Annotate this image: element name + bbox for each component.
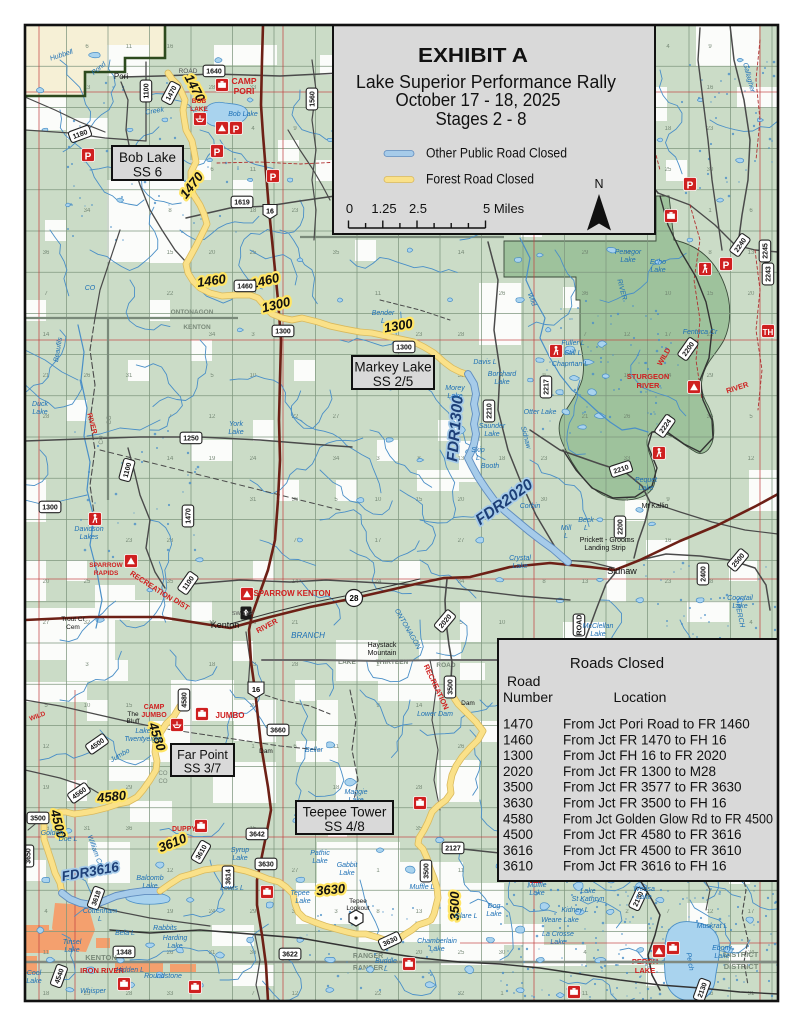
svg-text:Bluff: Bluff: [127, 718, 140, 725]
svg-text:31: 31: [84, 826, 91, 832]
svg-text:Bob Lake: Bob Lake: [119, 150, 176, 165]
svg-text:26: 26: [458, 744, 465, 750]
svg-text:Mill: Mill: [561, 525, 572, 532]
svg-text:Buddle: Buddle: [375, 958, 397, 965]
svg-text:RAPIDS: RAPIDS: [94, 570, 119, 577]
svg-text:3614: 3614: [226, 869, 233, 885]
svg-text:1460: 1460: [503, 732, 533, 747]
svg-text:From Jct Pori Road to FR 1460: From Jct Pori Road to FR 1460: [563, 717, 750, 732]
svg-text:10: 10: [499, 620, 506, 626]
svg-text:1.25: 1.25: [371, 201, 396, 216]
svg-text:CO: CO: [159, 779, 168, 785]
svg-text:L: L: [476, 455, 480, 462]
svg-text:Chamberlain: Chamberlain: [417, 938, 457, 945]
svg-text:Lake: Lake: [650, 267, 665, 274]
svg-text:Bela L: Bela L: [115, 930, 135, 937]
svg-text:ONTONAGON: ONTONAGON: [171, 309, 214, 316]
svg-text:27: 27: [43, 620, 50, 626]
svg-text:1348: 1348: [116, 950, 132, 957]
svg-text:PORI: PORI: [234, 86, 255, 96]
svg-text:29: 29: [250, 909, 257, 915]
svg-text:11: 11: [458, 868, 465, 874]
svg-text:Roundstone: Roundstone: [144, 973, 182, 980]
svg-text:Booth: Booth: [481, 463, 499, 470]
svg-text:1300: 1300: [42, 505, 58, 512]
svg-text:11: 11: [43, 950, 50, 956]
svg-text:36: 36: [582, 291, 589, 297]
svg-text:Lake: Lake: [494, 379, 509, 386]
svg-text:Sidnaw: Sidnaw: [607, 566, 637, 576]
svg-text:L: L: [584, 525, 588, 532]
svg-text:Lake: Lake: [26, 978, 41, 985]
svg-text:LAKE: LAKE: [635, 966, 655, 975]
svg-text:SS 2/5: SS 2/5: [373, 374, 414, 389]
svg-text:3642: 3642: [249, 832, 265, 839]
svg-text:Lake: Lake: [295, 898, 310, 905]
svg-text:October 17 - 18, 2025: October 17 - 18, 2025: [396, 89, 561, 110]
svg-text:DISTRICT: DISTRICT: [724, 962, 759, 971]
svg-text:Lake: Lake: [135, 728, 150, 735]
svg-text:Pequet: Pequet: [635, 477, 658, 484]
svg-text:3630: 3630: [316, 881, 347, 899]
svg-text:16: 16: [707, 85, 714, 91]
svg-text:From Jct FR 3577 to FR 3630: From Jct FR 3577 to FR 3630: [563, 780, 742, 795]
svg-text:23: 23: [416, 332, 423, 338]
svg-text:34: 34: [209, 332, 216, 338]
svg-text:23: 23: [126, 538, 133, 544]
svg-text:26: 26: [499, 291, 506, 297]
svg-text:Syrup: Syrup: [231, 847, 249, 854]
svg-text:3622: 3622: [282, 952, 298, 959]
svg-text:15: 15: [126, 703, 133, 709]
svg-text:Beller: Beller: [305, 747, 324, 754]
svg-text:Crystal: Crystal: [509, 555, 531, 562]
svg-text:28: 28: [209, 85, 216, 91]
svg-text:29: 29: [126, 785, 133, 791]
svg-text:The: The: [127, 711, 139, 718]
svg-text:Lake: Lake: [312, 858, 327, 865]
svg-text:Pori: Pori: [114, 72, 128, 81]
svg-text:Lake: Lake: [732, 603, 747, 610]
svg-text:18: 18: [250, 208, 257, 214]
svg-text:3500: 3500: [448, 679, 455, 695]
svg-text:3630: 3630: [503, 796, 533, 811]
svg-text:Cem: Cem: [66, 624, 80, 631]
svg-text:KENTON: KENTON: [85, 953, 117, 962]
svg-text:20: 20: [43, 579, 50, 585]
svg-text:10: 10: [375, 497, 382, 503]
svg-text:16: 16: [266, 209, 274, 216]
svg-text:25: 25: [665, 167, 672, 173]
svg-text:1300: 1300: [396, 345, 412, 352]
svg-text:ROAD: ROAD: [179, 68, 198, 75]
svg-text:From Jct FR 1470 to FH 16: From Jct FR 1470 to FH 16: [563, 732, 727, 747]
svg-text:21: 21: [292, 620, 299, 626]
svg-text:5 Miles: 5 Miles: [483, 201, 525, 216]
svg-text:36: 36: [250, 950, 257, 956]
svg-text:Lake: Lake: [580, 888, 595, 895]
svg-text:1300: 1300: [275, 329, 291, 336]
svg-text:CO: CO: [107, 415, 113, 424]
svg-text:Dam: Dam: [461, 700, 475, 707]
svg-text:Tepee: Tepee: [290, 890, 309, 897]
svg-text:14: 14: [416, 703, 423, 709]
svg-text:Lake: Lake: [714, 953, 729, 960]
svg-text:JUMBO: JUMBO: [141, 712, 167, 719]
svg-text:1640: 1640: [206, 69, 222, 76]
svg-text:23: 23: [541, 456, 548, 462]
svg-text:4580: 4580: [503, 811, 533, 826]
svg-text:11: 11: [126, 44, 133, 50]
svg-text:L: L: [564, 533, 568, 540]
svg-text:22: 22: [375, 991, 382, 997]
svg-text:P: P: [214, 147, 221, 158]
svg-text:Davidson: Davidson: [74, 526, 103, 533]
svg-text:27: 27: [292, 868, 299, 874]
svg-text:JUMBO: JUMBO: [216, 711, 245, 720]
svg-text:P: P: [85, 151, 92, 162]
svg-text:CO: CO: [99, 435, 105, 444]
svg-text:35: 35: [333, 250, 340, 256]
svg-text:Lake: Lake: [590, 631, 605, 638]
svg-text:Roads Closed: Roads Closed: [570, 655, 664, 672]
svg-text:2245: 2245: [763, 243, 770, 259]
svg-text:Harding: Harding: [163, 935, 188, 942]
svg-text:P: P: [687, 180, 694, 191]
svg-text:14: 14: [458, 250, 465, 256]
svg-text:Lake: Lake: [447, 393, 462, 400]
svg-text:SS 4/8: SS 4/8: [324, 819, 365, 834]
svg-text:1560: 1560: [310, 91, 317, 107]
svg-text:22: 22: [167, 291, 174, 297]
svg-text:Still L: Still L: [564, 350, 581, 357]
svg-text:16: 16: [252, 685, 260, 694]
svg-text:From Jct Golden Glow Rd to FR: From Jct Golden Glow Rd to FR 4500: [563, 811, 773, 826]
svg-text:27: 27: [333, 414, 340, 420]
svg-text:3500: 3500: [503, 780, 533, 795]
svg-text:Maggie: Maggie: [345, 789, 368, 796]
svg-text:From Jct FR 4580 to FR 3616: From Jct FR 4580 to FR 3616: [563, 827, 742, 842]
svg-text:29: 29: [707, 373, 714, 379]
svg-text:Lake: Lake: [529, 890, 544, 897]
svg-text:Muffle L: Muffle L: [410, 884, 435, 891]
svg-text:3610: 3610: [503, 859, 533, 874]
svg-text:Lewis L: Lewis L: [220, 885, 244, 892]
svg-text:CAMP: CAMP: [231, 76, 256, 86]
svg-text:30: 30: [499, 950, 506, 956]
svg-text:17: 17: [665, 332, 672, 338]
svg-text:Lake: Lake: [512, 563, 527, 570]
svg-text:31: 31: [126, 373, 133, 379]
svg-text:Lake: Lake: [32, 409, 47, 416]
svg-text:2020: 2020: [503, 764, 533, 779]
svg-text:1470: 1470: [186, 508, 193, 524]
svg-text:12: 12: [624, 332, 631, 338]
svg-text:RIVER: RIVER: [637, 381, 661, 390]
svg-text:L: L: [98, 916, 102, 923]
svg-text:4500: 4500: [503, 827, 533, 842]
svg-text:ROAD: ROAD: [436, 662, 455, 669]
svg-text:SPARROW KENTON: SPARROW KENTON: [253, 589, 330, 598]
svg-text:TH: TH: [763, 328, 774, 337]
svg-text:Doe L: Doe L: [59, 836, 78, 843]
svg-text:1250: 1250: [183, 436, 199, 443]
svg-text:Location: Location: [614, 689, 667, 705]
svg-text:26: 26: [84, 373, 91, 379]
svg-text:BRANCH: BRANCH: [291, 631, 325, 640]
svg-text:CAMP: CAMP: [144, 704, 165, 711]
svg-text:L: L: [384, 966, 388, 973]
svg-text:Duck: Duck: [32, 401, 48, 408]
svg-text:From Jct FR 3616 to FH 16: From Jct FR 3616 to FH 16: [563, 859, 727, 874]
svg-text:Prickett - Grooms: Prickett - Grooms: [580, 537, 635, 544]
svg-text:Lakes: Lakes: [80, 534, 99, 541]
svg-text:17: 17: [375, 538, 382, 544]
svg-text:Lake: Lake: [142, 883, 157, 890]
svg-text:EXHIBIT A: EXHIBIT A: [418, 44, 528, 67]
svg-text:23: 23: [665, 579, 672, 585]
svg-text:19: 19: [43, 785, 50, 791]
svg-text:27: 27: [458, 538, 465, 544]
svg-text:Lake: Lake: [484, 431, 499, 438]
svg-text:12: 12: [707, 909, 714, 915]
svg-text:25: 25: [458, 950, 465, 956]
svg-text:P: P: [270, 172, 277, 183]
svg-text:McClellan: McClellan: [583, 623, 614, 630]
svg-text:Road: Road: [507, 673, 540, 689]
svg-text:33: 33: [167, 991, 174, 997]
svg-text:12: 12: [209, 414, 216, 420]
svg-text:Lake: Lake: [620, 257, 635, 264]
svg-text:Lake: Lake: [167, 943, 182, 950]
svg-text:18: 18: [665, 126, 672, 132]
svg-text:Landing Strip: Landing Strip: [584, 545, 625, 552]
svg-text:30: 30: [541, 497, 548, 503]
svg-text:From Jct FR 1300 to M28: From Jct FR 1300 to M28: [563, 764, 716, 779]
svg-text:Lake: Lake: [550, 939, 565, 946]
svg-text:Whisper: Whisper: [80, 988, 106, 995]
svg-text:1470: 1470: [503, 717, 533, 732]
svg-text:La Crosse: La Crosse: [542, 931, 574, 938]
svg-text:Davis L: Davis L: [473, 359, 496, 366]
svg-text:Cool: Cool: [27, 970, 42, 977]
svg-text:Coontail: Coontail: [727, 595, 753, 602]
svg-text:28: 28: [350, 594, 359, 603]
svg-text:Lake: Lake: [339, 870, 354, 877]
svg-text:15: 15: [167, 250, 174, 256]
svg-text:4580: 4580: [182, 692, 189, 708]
svg-text:13: 13: [582, 579, 589, 585]
svg-text:Fentuca Cr: Fentuca Cr: [683, 329, 718, 336]
svg-text:Cottenham: Cottenham: [83, 908, 117, 915]
svg-text:DUPPY: DUPPY: [172, 826, 196, 833]
svg-text:CO: CO: [159, 771, 168, 777]
svg-text:4580: 4580: [95, 787, 127, 805]
svg-text:Beck: Beck: [578, 517, 594, 524]
svg-text:Haystack: Haystack: [368, 642, 397, 649]
svg-text:19: 19: [167, 909, 174, 915]
svg-text:12: 12: [167, 868, 174, 874]
svg-text:Mt Kallio: Mt Kallio: [642, 503, 669, 510]
svg-text:23: 23: [292, 208, 299, 214]
svg-text:Ebony: Ebony: [712, 945, 732, 952]
svg-text:17: 17: [748, 909, 755, 915]
svg-text:Teepee Tower: Teepee Tower: [303, 804, 387, 819]
svg-text:Lake: Lake: [228, 429, 243, 436]
svg-text:Skip: Skip: [471, 447, 485, 454]
svg-text:2200: 2200: [618, 519, 625, 535]
svg-text:20: 20: [748, 291, 755, 297]
svg-text:Morey: Morey: [445, 385, 465, 392]
svg-text:N: N: [594, 177, 603, 191]
svg-text:Muffle: Muffle: [527, 882, 546, 889]
svg-text:Mountain: Mountain: [368, 650, 397, 657]
svg-text:St Kathryn: St Kathryn: [572, 896, 605, 903]
svg-text:Lake: Lake: [486, 911, 501, 918]
svg-text:13: 13: [416, 909, 423, 915]
svg-text:18: 18: [499, 456, 506, 462]
svg-text:SS 6: SS 6: [133, 164, 162, 179]
svg-text:Pathic: Pathic: [310, 850, 330, 857]
svg-text:York: York: [229, 421, 244, 428]
svg-text:10: 10: [84, 703, 91, 709]
svg-text:BOB: BOB: [192, 98, 207, 105]
svg-text:Lookout: Lookout: [346, 905, 369, 912]
svg-text:31: 31: [250, 497, 257, 503]
svg-text:Bender: Bender: [372, 310, 395, 317]
svg-text:12: 12: [748, 456, 755, 462]
svg-text:Gabbit: Gabbit: [337, 862, 359, 869]
svg-text:3616: 3616: [503, 843, 533, 858]
svg-text:Stages 2 - 8: Stages 2 - 8: [436, 108, 527, 129]
svg-text:16: 16: [167, 44, 174, 50]
svg-text:13: 13: [748, 250, 755, 256]
svg-text:LAKE: LAKE: [190, 106, 208, 113]
svg-text:Bob Lake: Bob Lake: [228, 111, 258, 118]
svg-text:1100: 1100: [144, 83, 151, 98]
svg-text:3500: 3500: [30, 816, 46, 823]
svg-text:2400: 2400: [701, 566, 708, 582]
svg-text:Balcomb: Balcomb: [136, 875, 163, 882]
svg-text:Lower Dam: Lower Dam: [417, 711, 453, 718]
svg-text:28: 28: [126, 991, 133, 997]
svg-text:Penegor: Penegor: [615, 249, 642, 256]
svg-text:Lake: Lake: [232, 855, 247, 862]
svg-text:Weare Lake: Weare Lake: [541, 917, 579, 924]
svg-text:Other Public Road Closed: Other Public Road Closed: [426, 146, 567, 161]
svg-text:1300: 1300: [503, 748, 533, 763]
svg-text:Forest Road Closed: Forest Road Closed: [426, 172, 534, 187]
svg-text:Chapman L: Chapman L: [552, 361, 588, 368]
svg-text:From Jct FR 4500 to FR 3610: From Jct FR 4500 to FR 3610: [563, 843, 742, 858]
svg-text:Tepee: Tepee: [349, 898, 367, 905]
svg-text:Dam: Dam: [259, 748, 273, 755]
svg-text:CO: CO: [85, 285, 96, 292]
svg-text:11: 11: [582, 991, 589, 997]
svg-text:3630: 3630: [258, 862, 274, 869]
svg-text:16: 16: [665, 538, 672, 544]
svg-text:Number: Number: [503, 689, 553, 705]
svg-text:20: 20: [458, 497, 465, 503]
svg-text:2217: 2217: [544, 379, 551, 395]
svg-text:36: 36: [126, 826, 133, 832]
svg-text:Saunder: Saunder: [479, 423, 506, 430]
svg-text:25: 25: [84, 579, 91, 585]
svg-text:Dog: Dog: [488, 903, 501, 910]
svg-text:21: 21: [582, 414, 589, 420]
svg-text:SW 1164: SW 1164: [232, 611, 254, 617]
svg-text:10: 10: [665, 291, 672, 297]
svg-text:Lake: Lake: [636, 894, 651, 901]
svg-text:28: 28: [416, 785, 423, 791]
svg-text:18: 18: [209, 662, 216, 668]
svg-text:26: 26: [624, 414, 631, 420]
svg-text:L: L: [381, 318, 385, 325]
svg-text:19: 19: [209, 456, 216, 462]
svg-text:11: 11: [250, 167, 257, 173]
svg-text:36: 36: [43, 250, 50, 256]
svg-text:3500: 3500: [424, 863, 431, 879]
svg-text:Corbin: Corbin: [520, 503, 541, 510]
svg-text:Glare L: Glare L: [455, 913, 478, 920]
svg-text:Twentyeight: Twentyeight: [124, 736, 162, 743]
svg-text:20: 20: [209, 250, 216, 256]
svg-text:From Jct FR 3500 to FH 16: From Jct FR 3500 to FH 16: [563, 796, 727, 811]
svg-text:3650: 3650: [26, 848, 33, 864]
svg-text:Lake: Lake: [64, 947, 79, 954]
svg-text:14: 14: [167, 456, 174, 462]
svg-text:STURGEON: STURGEON: [627, 372, 670, 381]
svg-text:1460: 1460: [237, 284, 253, 291]
svg-text:0: 0: [346, 201, 353, 216]
svg-text:12: 12: [43, 744, 50, 750]
svg-text:From Jct FH 16 to FR 2020: From Jct FH 16 to FR 2020: [563, 748, 727, 763]
svg-text:Kidney L: Kidney L: [561, 907, 588, 914]
svg-text:P: P: [233, 124, 240, 135]
svg-text:Far Point: Far Point: [177, 748, 228, 762]
svg-text:2210: 2210: [487, 403, 494, 419]
svg-text:Rabbits: Rabbits: [153, 925, 177, 932]
svg-text:Tinsel: Tinsel: [63, 939, 82, 946]
svg-text:Kenton: Kenton: [211, 620, 240, 630]
svg-text:Lake: Lake: [429, 946, 444, 953]
svg-text:2243: 2243: [766, 266, 773, 282]
svg-text:Trout Cr: Trout Cr: [61, 616, 85, 623]
svg-text:Markey Lake: Markey Lake: [354, 359, 431, 374]
svg-text:3660: 3660: [270, 728, 286, 735]
svg-text:28: 28: [458, 332, 465, 338]
svg-text:Hidden L: Hidden L: [116, 967, 144, 974]
svg-text:P: P: [723, 260, 730, 271]
svg-text:2.5: 2.5: [409, 201, 427, 216]
svg-text:34: 34: [333, 456, 340, 462]
svg-text:SPARROW: SPARROW: [89, 562, 123, 569]
svg-text:35: 35: [167, 579, 174, 585]
svg-text:Echo: Echo: [650, 259, 666, 266]
svg-text:18: 18: [43, 991, 50, 997]
svg-text:Borchard: Borchard: [488, 371, 518, 378]
svg-text:24: 24: [250, 456, 257, 462]
svg-text:1619: 1619: [234, 200, 250, 207]
svg-text:34: 34: [84, 208, 91, 214]
svg-text:SS 3/7: SS 3/7: [184, 762, 222, 776]
svg-text:KENTON: KENTON: [183, 324, 211, 331]
svg-text:Muskrat L: Muskrat L: [697, 923, 728, 930]
svg-text:29: 29: [582, 250, 589, 256]
svg-text:Otter Lake: Otter Lake: [524, 409, 557, 416]
svg-text:11: 11: [375, 291, 382, 297]
svg-text:14: 14: [43, 332, 50, 338]
